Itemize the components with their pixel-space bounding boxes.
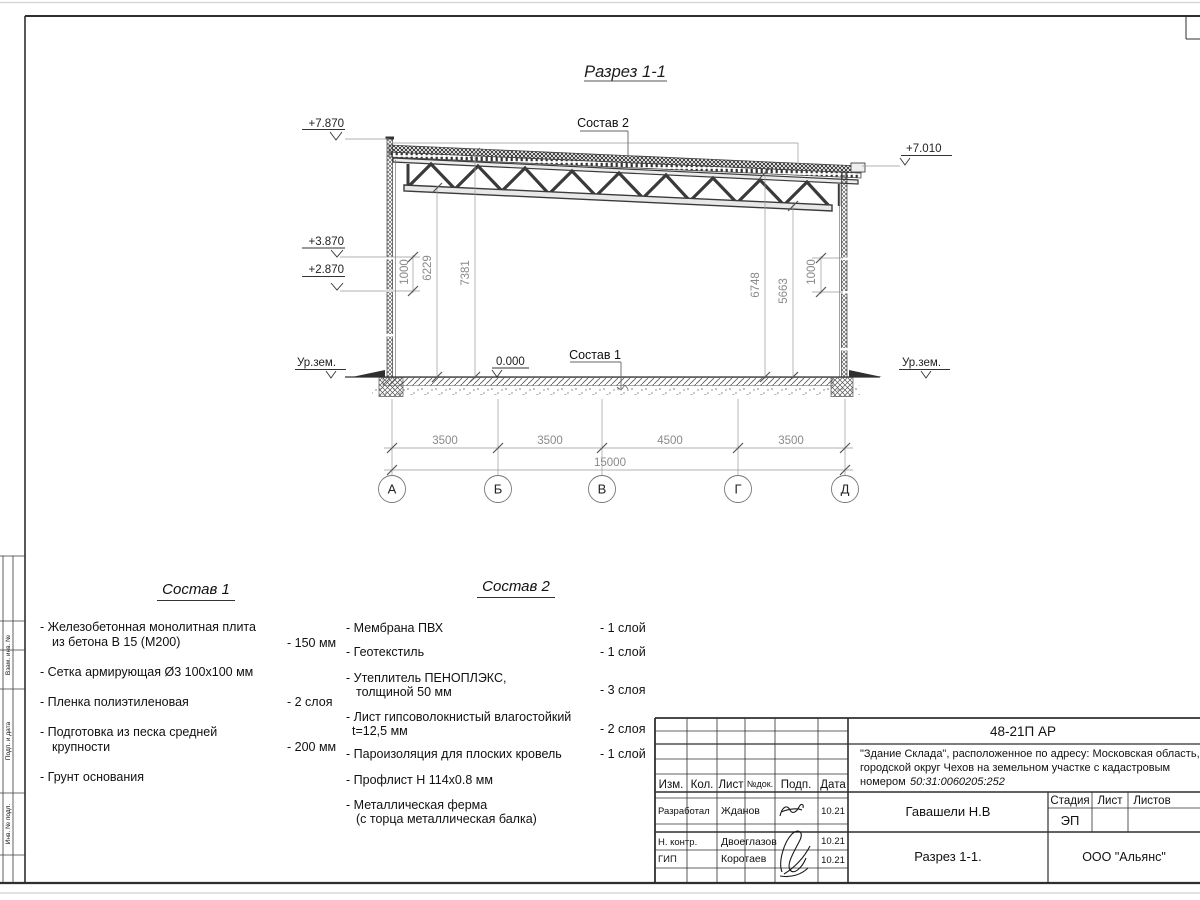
- sostav1-item2-line1: - Сетка армирующая Ø3 100х100 мм: [40, 665, 253, 679]
- frame-attachment-strip: [0, 556, 25, 883]
- dim-left-panel: 1000: [399, 259, 411, 285]
- signature-marks: [780, 804, 810, 876]
- axis-g: Г: [734, 482, 741, 497]
- tb-col-ndok: №док.: [747, 779, 773, 789]
- elev-mid-lower: +2.870: [309, 264, 345, 276]
- axis-d: Д: [841, 482, 850, 497]
- strip-label-inv: Инв. № подл.: [5, 804, 12, 845]
- dim-left-roof: 7381: [460, 260, 472, 286]
- tb-cadastral-number: 50:31:0060205:252: [910, 776, 1005, 788]
- sostav1-item1-value: - 150 мм: [287, 636, 336, 650]
- tb-col-kol: Кол.: [691, 779, 714, 791]
- tb-project-line2: городской округ Чехов на земельном участ…: [860, 762, 1170, 774]
- sostav2-item2-line1: - Геотекстиль: [346, 645, 424, 659]
- tb-company: ООО "Альянс": [1082, 850, 1166, 864]
- tb-stage-value: ЭП: [1061, 813, 1080, 828]
- tb-row3-name: Коротаев: [721, 853, 767, 865]
- drawing-sheet: Взам. инв. № Подп. и дата Инв. № подл. Р…: [0, 0, 1200, 900]
- roof-edge-cap: [851, 163, 865, 172]
- sostav2-ref-label: Состав 2: [577, 116, 629, 130]
- roof-assembly: [389, 145, 865, 184]
- tb-row1-role: Разработал: [658, 806, 710, 817]
- sostav2-item3-value: - 3 слоя: [600, 683, 645, 697]
- strip-label-vzam: Взам. инв. №: [5, 635, 12, 675]
- grade-mark-right: [849, 370, 882, 377]
- sostav1-item3-value: - 2 слоя: [287, 695, 332, 709]
- sostav2-item1-value: - 1 слой: [600, 621, 646, 635]
- sostav1-item1-line1: - Железобетонная монолитная плита: [40, 620, 256, 634]
- dim-right-truss: 5663: [778, 278, 790, 304]
- axis-v: В: [598, 482, 607, 497]
- tb-row1-name: Жданов: [721, 805, 760, 817]
- sostav2-item7-line1: - Металлическая ферма: [346, 798, 487, 812]
- tb-sheet-label: Лист: [1098, 795, 1124, 807]
- sostav2-item4-line1: - Лист гипсоволокнистый влагостойкий: [346, 710, 571, 724]
- floor-slab: [345, 370, 882, 397]
- tb-row3-date: 10.21: [821, 855, 845, 866]
- dim-left-truss: 6229: [422, 255, 434, 281]
- sostav2-item3-line1: - Утеплитель ПЕНОПЛЭКС,: [346, 671, 506, 685]
- sostav1-item4-line1: - Подготовка из песка средней: [40, 725, 217, 739]
- tb-row3-role: ГИП: [658, 854, 677, 865]
- sostav1-item5-line1: - Грунт основания: [40, 770, 144, 784]
- sostav2-item1-line1: - Мембрана ПВХ: [346, 621, 443, 635]
- sostav1-item3-line1: - Пленка полиэтиленовая: [40, 695, 189, 709]
- elev-roof-right: +7.010: [906, 143, 942, 155]
- tb-col-podp: Подп.: [781, 779, 812, 791]
- strip-label-podp: Подп. и дата: [5, 721, 12, 760]
- grade-mark-left: [352, 370, 385, 377]
- tb-drawing-name: Разрез 1-1.: [914, 849, 981, 864]
- tb-stage-label: Стадия: [1050, 795, 1089, 807]
- tb-row2-name: Двоеглазов: [721, 836, 777, 848]
- elev-mid-upper: +3.870: [309, 236, 345, 248]
- signature-2: [780, 831, 810, 876]
- sostav1-ref-label: Состав 1: [569, 348, 621, 362]
- sostav2-item4-value: - 2 слоя: [600, 722, 645, 736]
- signature-1: [780, 804, 803, 816]
- tb-col-list: Лист: [719, 779, 745, 791]
- tb-row2-role: Н. контр.: [658, 837, 697, 848]
- sostav2-item6-line1: - Профлист Н 114х0.8 мм: [346, 773, 493, 787]
- tb-row1-date: 10.21: [821, 806, 845, 817]
- axis-b: Б: [494, 482, 503, 497]
- sostav1-title: Состав 1: [157, 581, 235, 601]
- tb-sheets-label: Листов: [1133, 795, 1170, 807]
- elev-floor-zero: 0.000: [496, 356, 525, 368]
- elev-parapet: +7.870: [309, 118, 345, 130]
- axis-a: А: [388, 482, 397, 497]
- sostav1-item4-line2: крупности: [52, 740, 110, 754]
- drawing-title: Разрез 1-1: [584, 63, 666, 81]
- dim-total: 15000: [594, 457, 626, 469]
- dim-span-3: 4500: [657, 435, 683, 447]
- tb-doc-number: 48-21П АР: [990, 724, 1056, 739]
- dim-span-4: 3500: [778, 435, 804, 447]
- dim-right-roof: 6748: [750, 272, 762, 298]
- sostav1-item4-value: - 200 мм: [287, 740, 336, 754]
- sostav2-item5-line1: - Пароизоляция для плоских кровель: [346, 747, 562, 761]
- tb-col-izm: Изм.: [659, 779, 684, 791]
- sostav1-item1-line2: из бетона В 15 (М200): [52, 635, 180, 649]
- dim-span-1: 3500: [432, 435, 458, 447]
- sostav2-item4-line2: t=12,5 мм: [352, 724, 408, 738]
- sostav2-item7-line2: (с торца металлическая балка): [356, 812, 537, 826]
- dim-span-2: 3500: [537, 435, 563, 447]
- right-wall: [840, 172, 849, 377]
- tb-chief: Гавашели Н.В: [906, 804, 991, 819]
- tb-col-data: Дата: [820, 779, 846, 791]
- sostav2-item2-value: - 1 слой: [600, 645, 646, 659]
- sostav2-title: Состав 2: [477, 578, 555, 598]
- axis-bubbles: А Б В Г Д: [379, 476, 859, 503]
- sostav2-item5-value: - 1 слой: [600, 747, 646, 761]
- dim-right-panel: 1000: [806, 259, 818, 285]
- elev-ground-right: Ур.зем.: [902, 357, 941, 369]
- tb-project-line3: номером: [860, 776, 906, 788]
- tb-project-line1: "Здание Склада", расположенное по адресу…: [860, 748, 1200, 760]
- elev-ground-left: Ур.зем.: [297, 357, 336, 369]
- tb-row2-date: 10.21: [821, 836, 845, 847]
- section-drawing-canvas: Взам. инв. № Подп. и дата Инв. № подл. Р…: [0, 0, 1200, 900]
- sostav2-item3-line2: толщиной 50 мм: [356, 685, 452, 699]
